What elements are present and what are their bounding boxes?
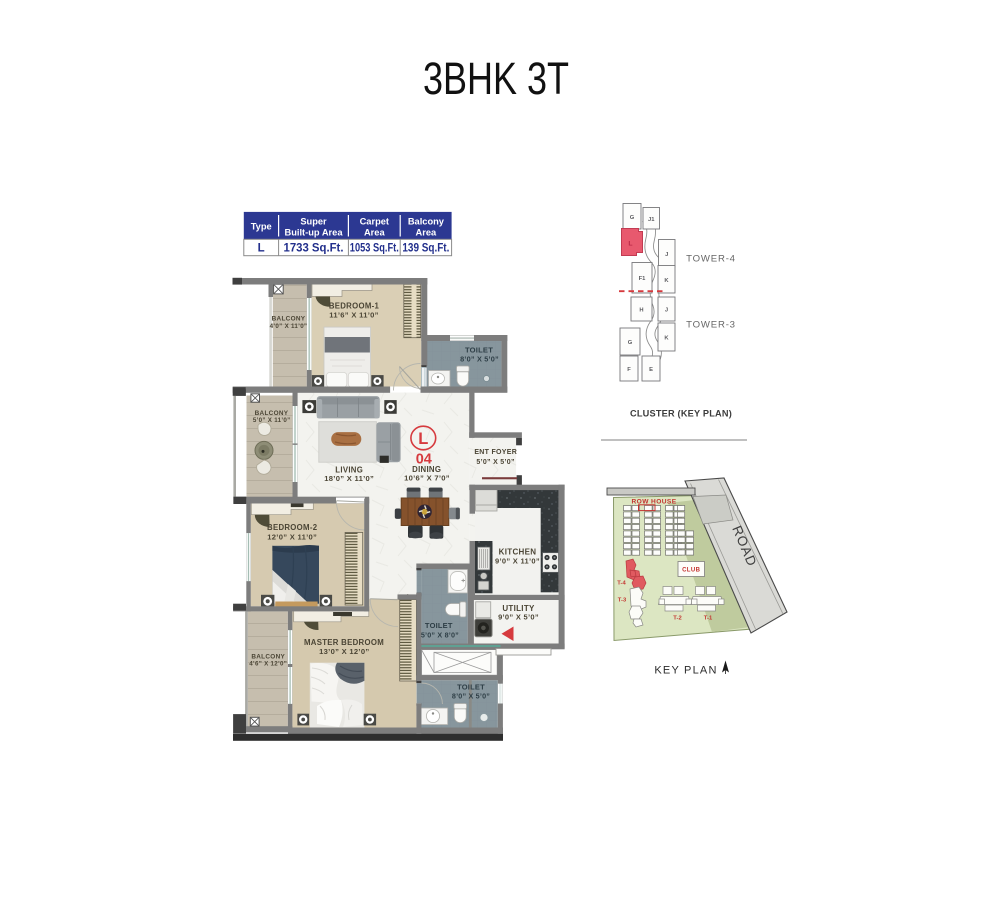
svg-text:13’0” X 12’0”: 13’0” X 12’0” — [319, 647, 369, 656]
svg-text:11’6” X 11’0”: 11’6” X 11’0” — [329, 311, 379, 320]
svg-text:L: L — [258, 243, 265, 255]
svg-text:1733 Sq.Ft.: 1733 Sq.Ft. — [284, 243, 344, 255]
svg-text:TOWER-3: TOWER-3 — [686, 319, 736, 330]
svg-text:8’0” X 5’0”: 8’0” X 5’0” — [460, 355, 499, 364]
svg-text:9’0” X 5’0”: 9’0” X 5’0” — [498, 613, 539, 622]
svg-text:LIVING: LIVING — [335, 465, 363, 474]
svg-text:J: J — [665, 252, 668, 258]
svg-text:T-4: T-4 — [617, 581, 626, 587]
svg-text:DINING: DINING — [412, 465, 441, 474]
svg-text:KEY PLAN: KEY PLAN — [654, 665, 717, 677]
svg-text:BEDROOM-1: BEDROOM-1 — [329, 302, 380, 311]
svg-text:CLUB: CLUB — [682, 567, 701, 573]
svg-text:J: J — [665, 308, 668, 314]
svg-text:BALCONY: BALCONY — [255, 410, 289, 417]
svg-text:4’6” X 12’0”: 4’6” X 12’0” — [249, 660, 287, 667]
svg-text:3BHK 3T: 3BHK 3T — [423, 53, 569, 104]
svg-text:L: L — [418, 430, 428, 448]
svg-text:10’6” X 7’0”: 10’6” X 7’0” — [404, 474, 450, 483]
svg-text:L: L — [628, 241, 632, 248]
svg-text:MASTER BEDROOM: MASTER BEDROOM — [304, 638, 384, 647]
svg-text:5’0” X 8’0”: 5’0” X 8’0” — [421, 631, 459, 640]
svg-text:T-2: T-2 — [673, 615, 681, 621]
svg-text:Area: Area — [416, 228, 438, 238]
svg-text:Carpet: Carpet — [360, 217, 389, 227]
svg-text:G: G — [630, 215, 635, 221]
svg-text:H: H — [639, 308, 643, 314]
svg-text:J1: J1 — [648, 217, 655, 223]
svg-text:1053 Sq.Ft.: 1053 Sq.Ft. — [350, 243, 399, 255]
svg-text:8’0” X 5’0”: 8’0” X 5’0” — [452, 691, 490, 700]
svg-text:T-3: T-3 — [618, 598, 627, 604]
svg-text:Balcony: Balcony — [408, 217, 445, 227]
svg-text:12’0” X 11’0”: 12’0” X 11’0” — [267, 532, 317, 541]
svg-text:139 Sq.Ft.: 139 Sq.Ft. — [402, 243, 449, 255]
svg-text:18’0” X 11’0”: 18’0” X 11’0” — [324, 474, 374, 483]
svg-text:Area: Area — [364, 228, 386, 238]
svg-text:TOWER-4: TOWER-4 — [686, 253, 736, 264]
svg-text:F: F — [627, 367, 631, 373]
svg-text:5’0” X 5’0”: 5’0” X 5’0” — [476, 459, 514, 466]
svg-text:9’0” X 11’0”: 9’0” X 11’0” — [495, 557, 540, 566]
svg-text:ENT FOYER: ENT FOYER — [474, 449, 517, 456]
svg-text:Super: Super — [300, 217, 327, 227]
svg-text:BEDROOM-2: BEDROOM-2 — [267, 523, 318, 532]
svg-text:5’0” X 11’0”: 5’0” X 11’0” — [253, 417, 291, 424]
svg-text:UTILITY: UTILITY — [502, 604, 535, 613]
svg-text:F1: F1 — [639, 276, 647, 282]
svg-text:KITCHEN: KITCHEN — [499, 548, 537, 557]
svg-text:4’0” X 11’0”: 4’0” X 11’0” — [270, 323, 308, 330]
svg-text:TOILET: TOILET — [457, 682, 485, 691]
svg-text:BALCONY: BALCONY — [272, 316, 306, 323]
svg-text:BALCONY: BALCONY — [251, 653, 285, 660]
svg-text:CLUSTER (KEY PLAN): CLUSTER (KEY PLAN) — [630, 409, 732, 419]
svg-text:TOILET: TOILET — [425, 621, 453, 630]
svg-text:Type: Type — [251, 222, 272, 232]
svg-text:TOILET: TOILET — [465, 346, 493, 355]
svg-text:Built-up Area: Built-up Area — [284, 228, 343, 238]
svg-text:E: E — [649, 367, 653, 373]
svg-text:T-1: T-1 — [704, 615, 713, 621]
svg-text:G: G — [628, 340, 633, 346]
